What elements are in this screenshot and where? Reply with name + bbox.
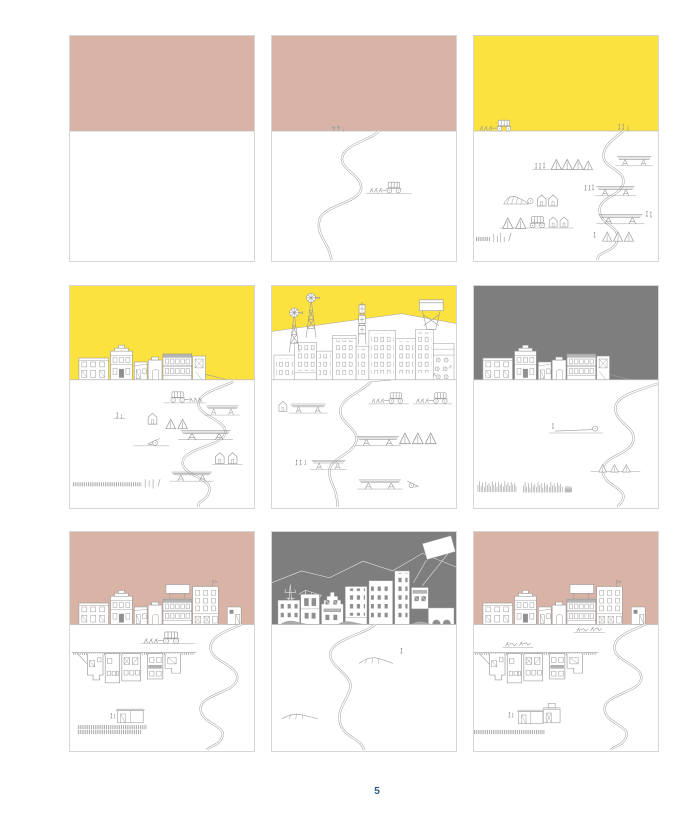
sky bbox=[70, 36, 254, 131]
panel-8 bbox=[271, 531, 457, 752]
excavation-reflection-icon bbox=[72, 653, 196, 683]
covered-wagon-icon bbox=[413, 393, 452, 404]
tents-icon bbox=[594, 232, 634, 241]
dirt-mound-icon bbox=[359, 657, 393, 663]
lumber-stack-icon bbox=[170, 472, 214, 481]
boardwalk-icon bbox=[73, 479, 160, 488]
excavation-reflection-icon bbox=[474, 653, 598, 683]
main-road bbox=[201, 624, 242, 750]
main-road bbox=[603, 384, 658, 507]
shed-icon bbox=[509, 703, 560, 723]
lumber-tents-icon bbox=[355, 433, 436, 446]
cabin-tents-icon bbox=[537, 195, 557, 206]
book-page: { "page": { "number": "5" }, "colors": {… bbox=[0, 0, 700, 839]
cart-icon bbox=[133, 439, 169, 446]
main-road bbox=[605, 624, 646, 750]
dirt-mound-icon bbox=[282, 713, 318, 718]
main-road bbox=[329, 380, 390, 507]
page-number: 5 bbox=[0, 786, 700, 797]
tents-icon bbox=[591, 465, 640, 472]
lumber-stack-icon bbox=[585, 185, 636, 196]
panel-4 bbox=[69, 285, 255, 509]
covered-wagon-icon bbox=[141, 632, 194, 644]
lumber-stack-icon bbox=[616, 157, 653, 166]
panel-2 bbox=[271, 35, 457, 262]
panel-5 bbox=[271, 285, 457, 509]
panel-6 bbox=[473, 285, 659, 509]
person-icon bbox=[401, 648, 402, 654]
panel-7 bbox=[69, 531, 255, 752]
cabin-tents-icon bbox=[212, 453, 242, 465]
cabin-lumber-icon bbox=[279, 401, 327, 413]
covered-wagon-icon bbox=[369, 393, 409, 404]
panel-3 bbox=[473, 35, 659, 262]
log-pile-icon bbox=[476, 233, 511, 242]
lumber-stack-icon bbox=[205, 406, 240, 415]
panel-grid bbox=[69, 35, 659, 752]
covered-wagon-icon bbox=[370, 182, 401, 193]
lumber-stack-icon bbox=[296, 460, 347, 470]
tents-icon bbox=[148, 413, 187, 428]
person-cart-icon bbox=[549, 423, 602, 433]
plow-team-icon bbox=[503, 642, 534, 647]
lumber-cart-icon bbox=[357, 480, 418, 489]
dirt-mound-icon bbox=[504, 196, 533, 204]
main-road bbox=[330, 624, 375, 750]
sky bbox=[272, 36, 456, 131]
settler-icon bbox=[114, 412, 126, 418]
panel-9 bbox=[473, 531, 659, 752]
trail-road bbox=[319, 131, 379, 260]
tent-row-icon bbox=[532, 160, 592, 170]
sky bbox=[474, 36, 658, 131]
panel-1 bbox=[69, 35, 255, 262]
plow-team-icon bbox=[574, 627, 605, 632]
camp-bottom-row-icon bbox=[500, 217, 573, 229]
grass-icon bbox=[478, 482, 572, 493]
boardwalk-icon bbox=[78, 727, 147, 732]
shed-icon bbox=[111, 709, 145, 723]
